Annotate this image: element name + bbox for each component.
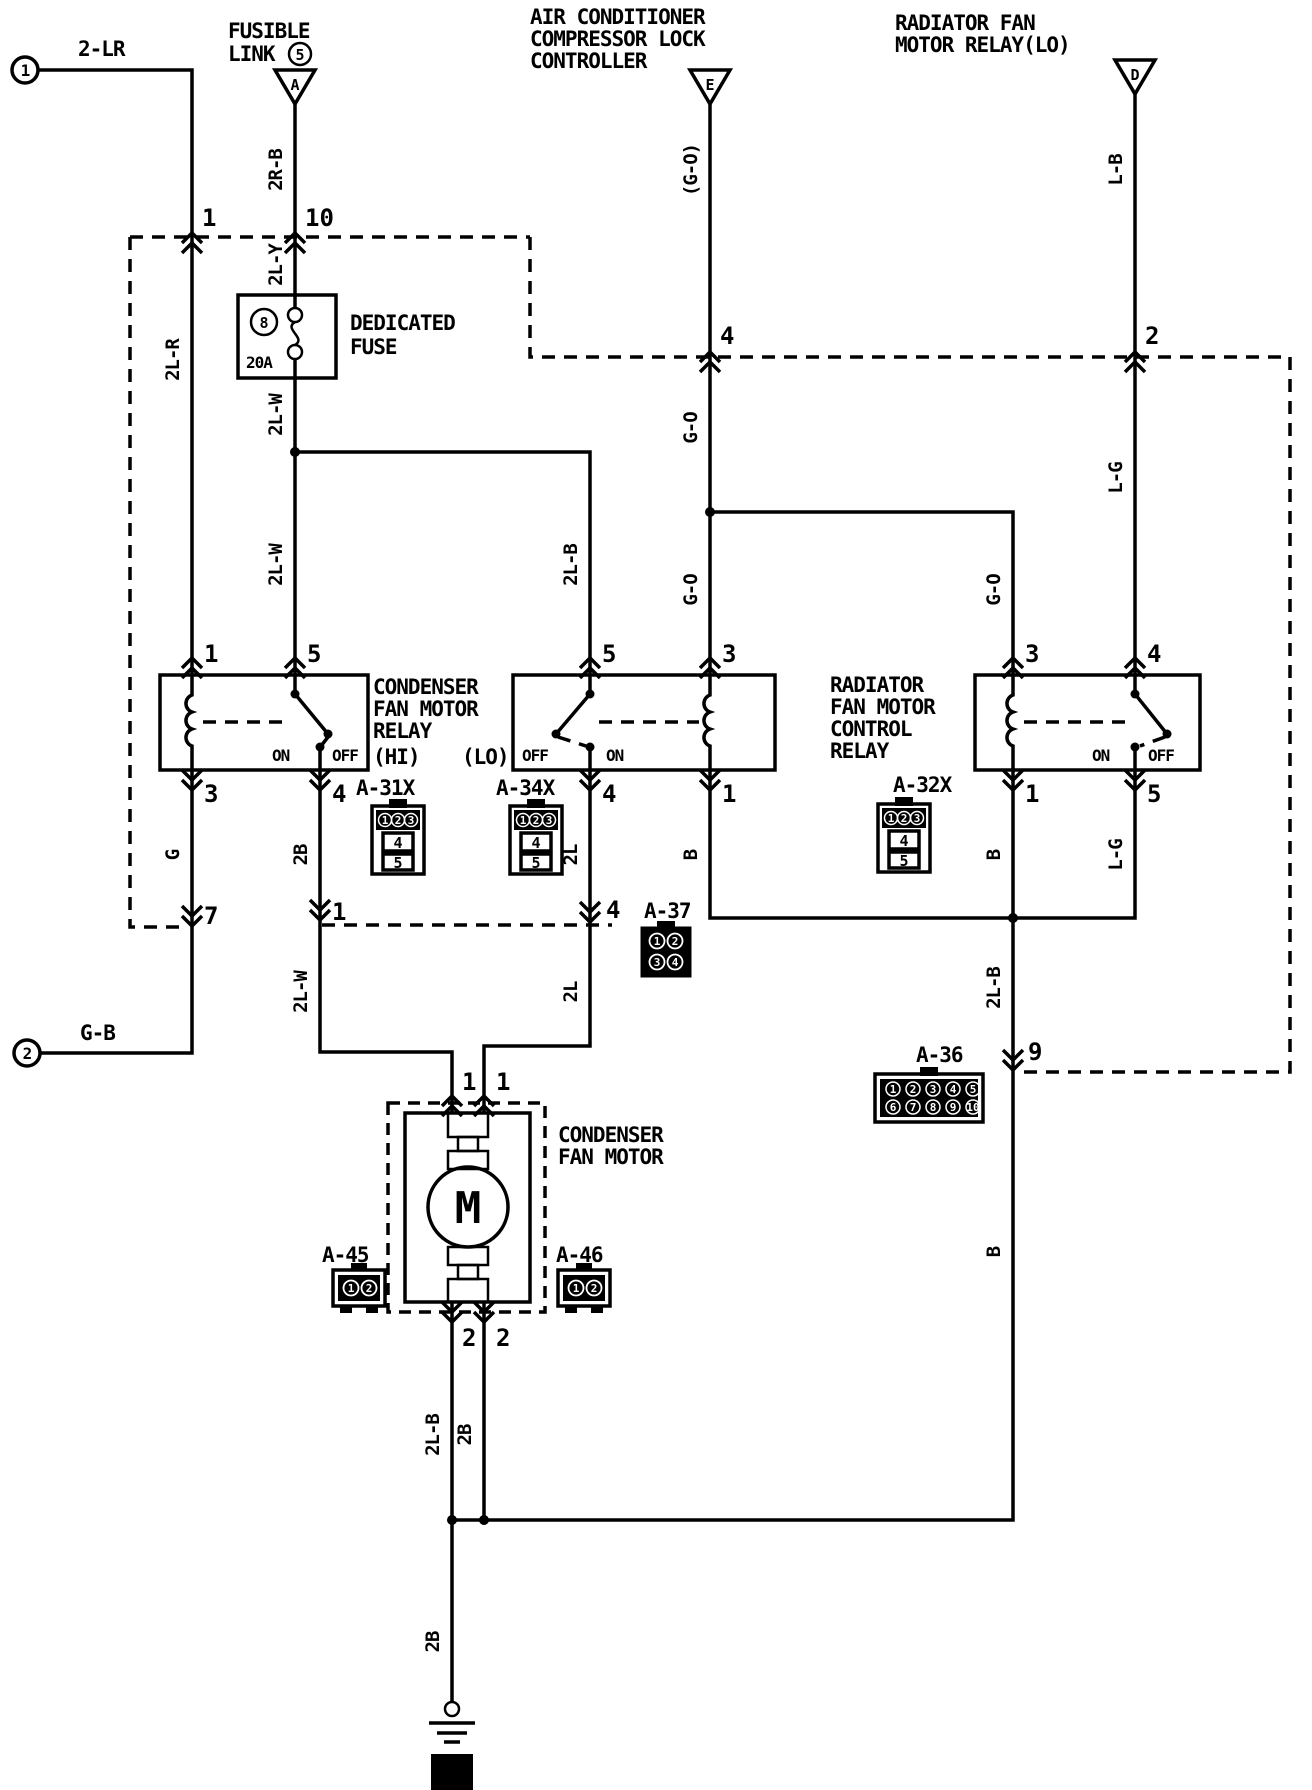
relay2-switch-blade: [556, 675, 590, 734]
fuse-number: 8: [259, 314, 268, 332]
relay1-pin3: 3: [204, 780, 218, 808]
wiring-diagram-canvas: 1 2-LR FUSIBLE LINK 5 A AIR CONDITIONER …: [0, 0, 1312, 1790]
pin-2-dash: 2: [1145, 322, 1159, 350]
wire-label-lb: L-B: [1105, 154, 1127, 186]
connector-a36-label: A-36: [916, 1043, 963, 1067]
relay-condenser-lo: OFF ON: [513, 675, 775, 770]
condenser-relay-title-2: FAN MOTOR: [373, 697, 479, 721]
motor-terminal-top: [448, 1113, 488, 1137]
motor-label-1: CONDENSER: [558, 1123, 664, 1147]
wire-label-2ly: 2L-Y: [265, 243, 287, 286]
junction-dot: [1008, 913, 1018, 923]
connector-a31x-icon: 1 2 3 4 5: [372, 799, 424, 874]
connector-a37-icon: 1 2 3 4: [642, 921, 690, 976]
relay2-pin3: 3: [722, 640, 736, 668]
wire-label-go-paren: (G-O): [680, 144, 702, 196]
wire-go-branch: [710, 512, 1013, 675]
wire-label-b-lower: B: [983, 1246, 1005, 1257]
wiring-diagram-page: 1 2-LR FUSIBLE LINK 5 A AIR CONDITIONER …: [0, 0, 1312, 1790]
svg-text:1: 1: [890, 1083, 897, 1096]
pin-numbers: 1 10 4 2 1 5 5 3 3 4 3 4 4 1 1 5 7 1 4 9…: [202, 204, 1161, 1352]
terminal-2: 2 G-B: [14, 1021, 115, 1066]
wire-label-2rb: 2R-B: [265, 149, 287, 191]
svg-text:3: 3: [546, 814, 553, 827]
svg-text:2: 2: [901, 812, 908, 825]
wire-label-gb: G-B: [80, 1021, 115, 1045]
wire-label-2lw-motor: 2L-W: [290, 970, 312, 1013]
ac-title-1: AIR CONDITIONER: [530, 5, 706, 29]
junction-dot: [291, 690, 300, 699]
svg-text:5: 5: [393, 854, 402, 872]
pin-4-dash: 4: [720, 322, 734, 350]
wire-2lb-branch: [295, 452, 590, 675]
wire-b-relay2: [710, 770, 1013, 918]
motor-terminal-bottom-base: [448, 1247, 488, 1265]
wire-label-2lr-vert: 2L-R: [162, 338, 184, 381]
svg-text:3: 3: [930, 1083, 937, 1096]
ac-title-3: CONTROLLER: [530, 49, 648, 73]
svg-text:2: 2: [672, 935, 679, 948]
motor-pin2-right: 2: [496, 1324, 510, 1352]
relay3-switch-blade: [1135, 675, 1167, 734]
triangle-a-letter: A: [290, 76, 299, 94]
pin-9-a36: 9: [1028, 1038, 1042, 1066]
relay3-on-label: ON: [1092, 746, 1110, 765]
motor-terminal-bottom-stem: [458, 1265, 478, 1279]
svg-text:4: 4: [393, 834, 402, 852]
radiator-relay-title-2: FAN MOTOR: [830, 695, 936, 719]
connector-names: A-31X A-34X A-32X A-37 A-36 A-45 A-46: [322, 773, 963, 1267]
svg-text:1: 1: [573, 1282, 580, 1295]
svg-text:10: 10: [966, 1101, 979, 1114]
arrow-and-junction-marks: [182, 233, 1172, 1525]
radiator-fan-motor-relay-lo-terminal: RADIATOR FAN MOTOR RELAY(LO) D: [895, 11, 1155, 94]
wire-label-2lb-motor: 2L-B: [422, 1414, 444, 1456]
svg-text:8: 8: [930, 1101, 937, 1114]
connector-a34x-label: A-34X: [496, 776, 556, 800]
relay-condenser-hi: ON OFF: [160, 675, 368, 770]
junction-dot: [479, 1515, 489, 1525]
svg-text:4: 4: [531, 834, 540, 852]
relay3-switch-gap: [1140, 737, 1165, 746]
fusible-link-number: 5: [295, 46, 304, 64]
relay2-pin1: 1: [722, 780, 736, 808]
fuse-label-1: DEDICATED: [350, 311, 455, 335]
pin-7-dash: 7: [204, 902, 218, 930]
junction-dot: [1131, 690, 1140, 699]
wire-label-go-1: G-O: [680, 412, 702, 444]
condenser-relay-hi: (HI): [373, 745, 420, 769]
ac-compressor-lock-controller-terminal: AIR CONDITIONER COMPRESSOR LOCK CONTROLL…: [530, 5, 730, 104]
relay1-off-label: OFF: [332, 746, 358, 765]
svg-text:5: 5: [531, 854, 540, 872]
fusible-link-terminal: FUSIBLE LINK 5 A: [228, 19, 315, 104]
connector-a32x-label: A-32X: [893, 773, 953, 797]
relay3-pin4: 4: [1147, 640, 1161, 668]
connector-a31x-label: A-31X: [356, 776, 416, 800]
motor-m-symbol: M: [455, 1183, 482, 1234]
connector-a46-icon: 1 2: [558, 1263, 610, 1313]
radiator-relay-title-3: CONTROL: [830, 717, 912, 741]
relay3-pin5: 5: [1147, 780, 1161, 808]
wire-label-2lw-upper: 2L-W: [265, 393, 287, 436]
motor-pin2-left: 2: [462, 1324, 476, 1352]
svg-text:2: 2: [533, 814, 540, 827]
connector-a36-icon: 1 2 3 4 5 6 7 8 9 10: [875, 1067, 983, 1122]
wire-b-ground-bus: [452, 770, 1013, 1520]
terminal-1-number: 1: [21, 61, 30, 80]
wire-g-gb: [40, 770, 192, 1053]
relay3-pin3: 3: [1025, 640, 1039, 668]
wire-label-2l-lower: 2L: [560, 981, 582, 1002]
svg-text:1: 1: [888, 812, 895, 825]
motor-pin1-left: 1: [462, 1068, 476, 1096]
svg-text:2: 2: [366, 1282, 373, 1295]
pin-1-dash: 1: [202, 204, 216, 232]
junction-dot: [447, 1515, 457, 1525]
relay3-off-label: OFF: [1148, 746, 1174, 765]
fuse-rating: 20A: [246, 353, 273, 372]
wire-label-go-3: G-O: [983, 574, 1005, 606]
page-ref-number: 4: [444, 1756, 461, 1789]
radiator-relay-title-4: RELAY: [830, 739, 890, 763]
wire-label-lg-upper: L-G: [1105, 462, 1127, 494]
terminal-2-number: 2: [23, 1044, 32, 1063]
wire-label-2lb-right: 2L-B: [983, 967, 1005, 1009]
junction-dot: [586, 690, 595, 699]
relay1-switch-blade: [295, 675, 328, 734]
rad-title-2: MOTOR RELAY(LO): [895, 33, 1070, 57]
fuse-element-top: [288, 308, 302, 322]
relay1-on-label: ON: [272, 746, 290, 765]
svg-text:3: 3: [654, 956, 661, 969]
fusible-link-title-2: LINK: [228, 42, 276, 66]
relay1-pin4: 4: [332, 780, 346, 808]
connector-a34x-icon: 1 2 3 4 5: [510, 799, 562, 874]
wire-label-2lw-lower: 2L-W: [265, 543, 287, 586]
svg-text:4: 4: [672, 956, 679, 969]
junction-dot: [316, 743, 325, 752]
wire-label-2lb-branch: 2L-B: [560, 544, 582, 586]
fusible-link-title-1: FUSIBLE: [228, 19, 310, 43]
relay2-on-label: ON: [606, 746, 624, 765]
wires: [38, 70, 1135, 1702]
a37-body: [642, 928, 690, 976]
fuse-element-wave: [292, 322, 299, 345]
wire-label-2b-motor: 2B: [454, 1424, 476, 1445]
ground-circle: [445, 1702, 459, 1716]
junction-dot: [552, 730, 561, 739]
wire-label-2b-ground: 2B: [422, 1631, 444, 1652]
terminal-1: 1 2-LR: [12, 37, 126, 83]
relay1-pin1: 1: [204, 640, 218, 668]
svg-text:1: 1: [382, 814, 389, 827]
relay1-pin5: 5: [307, 640, 321, 668]
pin-4-a37: 4: [606, 896, 620, 924]
junction-dot: [324, 730, 333, 739]
rad-title-1: RADIATOR FAN: [895, 11, 1035, 35]
wire-label-b-relay3: B: [983, 849, 1005, 860]
junction-dot: [586, 743, 595, 752]
radiator-relay-title-1: RADIATOR: [830, 673, 925, 697]
svg-text:9: 9: [950, 1101, 957, 1114]
wire-label-b-relay2: B: [680, 849, 702, 860]
svg-text:1: 1: [520, 814, 527, 827]
ac-title-2: COMPRESSOR LOCK: [530, 27, 706, 51]
pin-10-dash: 10: [305, 204, 334, 232]
svg-text:7: 7: [910, 1101, 917, 1114]
connector-a32x-icon: 1 2 3 4 5: [878, 797, 930, 872]
motor-terminal-top-stem: [458, 1137, 478, 1151]
triangle-d-letter: D: [1130, 66, 1139, 84]
connector-a45-icon: 1 2: [333, 1263, 385, 1313]
svg-text:1: 1: [348, 1282, 355, 1295]
wire-label-go-2: G-O: [680, 574, 702, 606]
wire-label-2lr: 2-LR: [78, 37, 126, 61]
wire-label-g: G: [162, 849, 184, 860]
relay2-switch-gap: [558, 737, 586, 746]
motor-label-2: FAN MOTOR: [558, 1145, 664, 1169]
relay2-pin4: 4: [602, 780, 616, 808]
triangle-e-letter: E: [705, 76, 714, 94]
ground-symbol: 4: [429, 1702, 475, 1790]
relay2-off-label: OFF: [522, 746, 548, 765]
junction-dot: [1131, 743, 1140, 752]
svg-text:4: 4: [899, 832, 908, 850]
relay-radiator-control: ON OFF: [975, 675, 1200, 770]
svg-text:6: 6: [890, 1101, 897, 1114]
connector-a37-label: A-37: [644, 899, 691, 923]
junction-dot: [705, 507, 715, 517]
junction-dot: [1163, 730, 1172, 739]
junction-dot: [290, 447, 300, 457]
svg-text:4: 4: [950, 1083, 957, 1096]
ground-bars: [429, 1723, 475, 1742]
wire-label-lg-lower: L-G: [1105, 839, 1127, 871]
motor-pin1-right: 1: [496, 1068, 510, 1096]
condenser-fan-motor: M CONDENSER FAN MOTOR: [388, 1103, 664, 1312]
svg-text:3: 3: [408, 814, 415, 827]
svg-text:3: 3: [914, 812, 921, 825]
fuse-element-bottom: [288, 345, 302, 359]
relay3-coil: [1007, 675, 1013, 770]
svg-text:2: 2: [591, 1282, 598, 1295]
relay2-coil: [704, 675, 710, 770]
pin-1-a37: 1: [332, 898, 346, 926]
condenser-relay-lo: (LO): [462, 745, 509, 769]
svg-text:2: 2: [910, 1083, 917, 1096]
svg-text:1: 1: [654, 935, 661, 948]
svg-text:5: 5: [899, 852, 908, 870]
fuse-label-2: FUSE: [350, 335, 397, 359]
dedicated-fuse: 8 20A DEDICATED FUSE: [238, 295, 455, 378]
relay2-pin5: 5: [602, 640, 616, 668]
svg-text:5: 5: [970, 1083, 977, 1096]
wire-label-2b-relay1: 2B: [290, 844, 312, 865]
condenser-relay-title-3: RELAY: [373, 719, 433, 743]
svg-text:2: 2: [395, 814, 402, 827]
relay1-coil: [186, 675, 192, 770]
relay3-pin1: 1: [1025, 780, 1039, 808]
motor-terminal-bottom: [448, 1279, 488, 1302]
condenser-relay-title-1: CONDENSER: [373, 675, 479, 699]
